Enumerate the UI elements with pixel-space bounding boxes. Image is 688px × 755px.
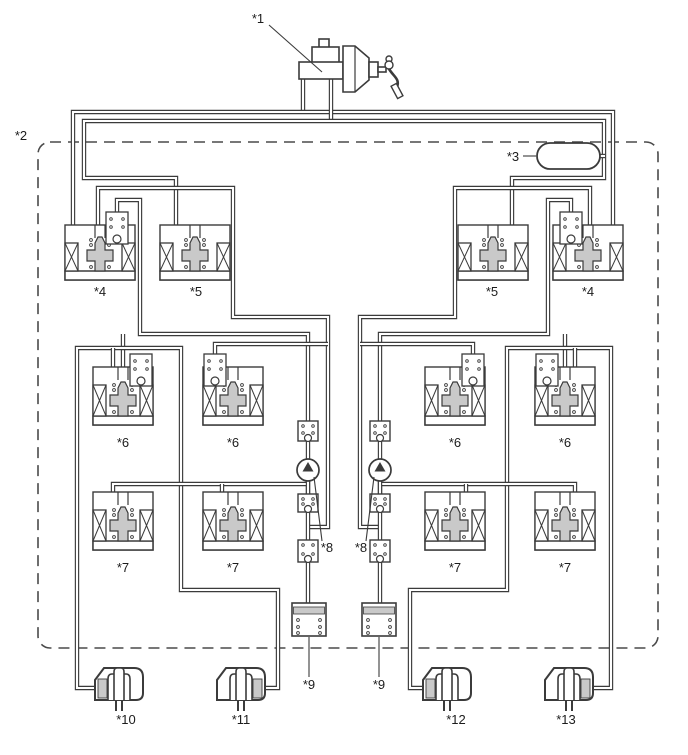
label-5b: *5 [486,284,498,299]
pipe [215,344,328,357]
check-valve-left-bottom [298,540,318,563]
solenoid-valve-7-left-outer [93,492,153,550]
internal-check-valve [106,212,128,244]
piston [114,668,124,700]
label-13: *13 [556,712,576,727]
check-valve-right-mid [370,494,390,513]
internal-check-valve [536,354,558,386]
check-valve-right-top [370,421,390,442]
check-valve-left-mid [298,494,318,513]
pipe [84,121,604,226]
pipe [360,344,473,357]
label-7a: *7 [117,560,129,575]
label-7b: *7 [227,560,239,575]
piston-seal [253,679,262,698]
check-valve-left-top [298,421,318,442]
label-3: *3 [507,149,519,164]
label-6d: *6 [559,435,571,450]
label-4b: *4 [582,284,594,299]
solenoid-valve-5-left [160,225,230,280]
pump-right [369,459,391,481]
pump-left [297,459,319,481]
internal-check-valve [560,212,582,244]
solenoid-valve-7-right-inner [425,492,485,550]
piston-seal [581,679,590,698]
label-8a: *8 [321,540,333,555]
label-6a: *6 [117,435,129,450]
master-cylinder-and-booster [299,39,403,99]
internal-check-valve [130,354,152,386]
solenoid-valve-6-left-inner [203,354,263,425]
solenoid-valve-7-right-outer [535,492,595,550]
label-9a: *9 [303,677,315,692]
accumulator [537,143,600,169]
label-4a: *4 [94,284,106,299]
label-9b: *9 [373,677,385,692]
internal-check-valve [204,354,226,386]
wheel-cylinder-12 [423,668,471,711]
label-7d: *7 [559,560,571,575]
brake-hydraulic-diagram: *1*2*3*4*5*5*4*6*6*6*6*7*7*7*7*8*8*9*9*1… [0,0,688,755]
piston [564,668,574,700]
label-7c: *7 [449,560,461,575]
solenoid-valve-7-left-inner [203,492,263,550]
internal-check-valve [462,354,484,386]
solenoid-valve-6-right-inner [425,354,485,425]
wheel-cylinder-13 [545,668,593,711]
wheel-cylinder-10 [95,668,143,711]
label-5a: *5 [190,284,202,299]
piston [442,668,452,700]
label-6c: *6 [449,435,461,450]
diagram-canvas: *1*2*3*4*5*5*4*6*6*6*6*7*7*7*7*8*8*9*9*1… [0,0,688,755]
brake-booster [343,46,386,92]
label-12: *12 [446,712,466,727]
label-6b: *6 [227,435,239,450]
label-2: *2 [15,128,27,143]
piston [236,668,246,700]
piston-seal [426,679,435,698]
label-8b: *8 [355,540,367,555]
brake-pedal [385,56,403,99]
label-10: *10 [116,712,136,727]
pipe [73,112,613,226]
solenoid-valve-5-right [458,225,528,280]
piston-seal [98,679,107,698]
label-1: *1 [252,11,264,26]
reservoir-right [362,603,396,636]
hydraulic-pipes [73,70,613,688]
label-11: *11 [232,712,251,727]
wheel-cylinder-11 [217,668,265,711]
check-valve-right-bottom [370,540,390,563]
reservoir-left [292,603,326,636]
